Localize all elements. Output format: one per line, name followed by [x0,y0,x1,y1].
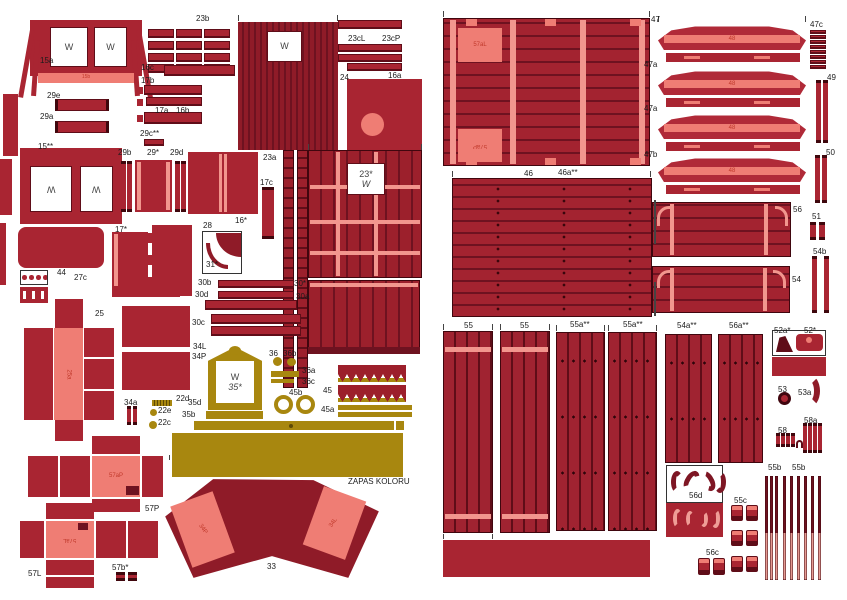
part-label-23a: 23a [263,153,276,162]
part-label-54b: 54b [813,247,826,256]
part-label-47: 47 [651,15,660,24]
part-label-29d: 29d [170,148,183,157]
part-label-56d: 56d [689,491,702,500]
tab [630,158,641,165]
part-label-30b: 30b [198,278,211,287]
part-45a [338,412,412,417]
part-55b-pin [790,476,793,580]
part-label-57p: 57P [145,504,159,513]
part-label-29-: 29* [147,148,159,157]
part-label-55a-: 55a** [623,320,643,329]
fold-tick [443,534,444,539]
part-30c [211,326,301,336]
window-text: W [92,184,101,194]
window-text: W [47,184,56,194]
part-25-tab [55,299,83,328]
part-label-47a: 47a [644,60,657,69]
part-label-49: 49 [827,73,836,82]
part-label-29c-: 29c** [140,129,159,138]
part-label-44: 44 [57,268,66,277]
batten [502,347,548,352]
part-label-56c: 56c [706,548,719,557]
tab [137,115,143,122]
part-57L-flap [20,521,44,558]
part-23b-slat [176,41,202,50]
part-34P [122,352,190,390]
part-52-bar [772,357,826,376]
window: W [50,27,88,67]
tab [137,87,143,94]
part-33-patch-text: 34L [329,517,340,529]
part-27c [18,227,104,268]
part-57aL-face-text: 57aL [63,536,76,543]
curve-piece [686,511,694,527]
part-23b-slat [148,53,174,62]
fold-tick [604,325,605,331]
part-label-45a: 45a [321,405,334,414]
batten [580,20,586,164]
dash [684,101,700,104]
part-48-band: 48 [664,80,800,88]
dash [754,101,770,104]
window-subtext: W [362,179,371,189]
fold-tick [337,15,338,21]
part-25-tab [55,420,83,441]
part-29cxx [144,139,164,146]
glue-patch: 57aL [458,28,502,62]
part-55b-pin [770,476,773,580]
tab [630,19,641,26]
part-label-55: 55 [464,321,473,330]
part-35d [206,411,263,419]
tab [146,233,152,243]
part-55c [731,505,743,521]
part-label-55a-: 55a** [570,320,590,329]
block [347,79,422,150]
part-label-51: 51 [812,212,821,221]
part-35b-end [396,421,404,430]
part-25-arm [84,328,114,357]
part-label-16c: 16c [141,63,154,72]
part-25-arm [84,391,114,420]
part-label-54a-: 54a** [677,321,697,330]
part-29b [121,161,126,212]
part-36a [271,371,299,377]
dash [754,145,770,148]
batten [336,152,340,276]
part-57aP-face-text: 57aP [109,473,123,480]
part-54b [812,256,817,313]
part-23cL [338,20,402,29]
part-label-45b: 45b [289,388,302,397]
batten [310,283,418,287]
part-36c [271,379,294,383]
fold-tick [443,324,444,330]
window: W [80,166,113,212]
part-16b [146,97,202,106]
part-label-34p: 34P [192,352,206,361]
part-30c [211,314,301,324]
part-58 [776,433,780,447]
fold-tick [492,534,493,539]
part-56c [698,558,710,575]
part-label-36b: 36b [283,349,296,358]
part-48-band: 48 [664,167,800,175]
bottom-bar [443,540,650,577]
tab [137,99,143,106]
tab [146,255,152,265]
part-47c [810,55,826,59]
part-57L-tab [46,577,94,588]
part-label-29e: 29e [47,91,60,100]
part-47c [810,50,826,54]
part-29d [181,161,186,212]
part-label-35b: 35b [182,410,195,419]
window-subtext: 35* [228,382,242,392]
fold-tick [169,455,170,460]
window: W [267,31,302,62]
window-text: W [106,42,115,52]
edge-strip [3,94,18,156]
part-23b-slat [204,53,230,62]
fold-tick [500,324,501,330]
part-57b [116,572,125,581]
part-48-band-text: 48 [729,36,736,43]
part-45 [338,385,406,402]
dash [754,188,770,191]
part-25a-center-text: 25a [65,369,72,379]
part-label-16-: 16* [235,216,247,225]
fold-tick [608,325,609,331]
part-label-46a-: 46a** [558,168,578,177]
part-29b [127,161,132,212]
part-25a-center: 25a [54,328,83,420]
fold-tick [654,282,656,316]
part-label-16a: 16a [388,71,401,80]
part-label-45: 45 [323,386,332,395]
part-16x-panel [188,152,258,214]
part-57P-tab [92,499,140,512]
batten [639,20,645,164]
part-55b-pin [765,476,768,580]
curve-piece [671,471,683,493]
fold-tick [238,15,239,21]
part-label-22c: 22c [158,418,171,427]
notch [126,486,139,495]
edge-strip [0,223,6,285]
glue-patch-text: 57aP [473,142,487,149]
part-23b-slat [148,41,174,50]
part-label-55: 55 [520,321,529,330]
part-55b-pin [775,476,778,580]
part-47c [810,40,826,44]
part-55a-panel [556,332,605,531]
curve-piece [714,471,726,493]
part-57L-arm [96,521,126,558]
part-label-23cp: 23cP [382,34,400,43]
window: W35* [216,361,254,403]
dash [684,145,700,148]
part-label-35d: 35d [188,398,201,407]
part-label-55b: 55b [768,463,781,472]
part-label-53a: 53a [798,388,811,397]
batten [310,251,420,255]
spare-color-block [172,433,403,477]
part-label-zapas-koloru: ZAPAS KOLORU [348,477,410,486]
part-55c [731,530,743,546]
part-45b [274,395,293,414]
part-label-23cl: 23cL [348,34,365,43]
part-label-55c: 55c [734,496,747,505]
part-55a-panel [608,332,657,531]
batten [764,204,768,255]
batten [137,162,141,210]
part-30a [205,300,297,310]
part-51 [819,222,825,240]
part-57P-arm [60,456,90,497]
notch [78,523,88,530]
part-54b [824,256,829,313]
clip [796,440,803,448]
curve-piece [711,509,720,528]
part-46a-panel [452,178,652,317]
part-47c [810,45,826,49]
part-label-33: 33 [267,562,276,571]
part-58a [808,423,812,453]
part-47c [810,30,826,34]
batten [166,162,170,210]
part-label-16b: 16b [176,106,189,115]
part-label-23b: 23b [196,14,209,23]
part-56c [713,558,725,575]
batten [224,154,227,212]
part-label-56: 56 [793,205,802,214]
batten [502,514,548,519]
part-55c [746,505,758,521]
part-58 [791,433,795,447]
part-label-15a: 15a [40,56,53,65]
part-48-band-text: 48 [729,168,736,175]
part-15b-band: 15b [38,73,134,83]
fold-tick [654,200,656,244]
part-25-arm [84,359,114,389]
part-57P-arm [28,456,58,497]
fold-tick [492,324,493,330]
part-17b [144,85,202,95]
knob [229,346,241,355]
part-55b-pin [818,476,821,580]
window-text: W [280,41,289,51]
part-17a [144,112,202,124]
part-label-31-: 31* [206,260,218,269]
part-45 [338,365,406,382]
part-label-17c: 17c [260,178,273,187]
part-55b-pin [811,476,814,580]
part-label-30c: 30c [192,318,205,327]
fold-tick [656,325,657,331]
part-47c [810,65,826,69]
fold-tick [443,11,444,17]
glue-patch-text: 57aL [473,42,486,49]
part-55c [746,556,758,572]
fold-tick [650,171,651,177]
model-sheet: WW15bWWW23*W25aW35*57aP57aL34P34L57aL57a… [0,0,847,600]
part-25-arm [24,328,53,420]
part-label-50: 50 [826,148,835,157]
part-34a [127,406,131,425]
part-label-22e: 22e [158,406,171,415]
fold-tick [308,144,309,150]
part-label-34a: 34a [124,398,137,407]
part-23c-slat [338,44,402,52]
dash [684,56,700,59]
batten [445,347,491,352]
part-49 [816,80,821,143]
part-label-15-: 15** [38,142,53,151]
part-49 [823,80,828,143]
part-22e [150,409,157,416]
part-44-bottom [20,287,48,303]
part-label-57l: 57L [28,569,41,578]
part-23b-slat [148,29,174,38]
part-29e [55,99,109,111]
part-16a [347,63,402,71]
batten [670,268,674,311]
disc [361,113,384,136]
part-57L-tab [46,560,94,575]
part-57P-tab [92,436,140,454]
part-58a [813,423,817,453]
edge-strip [0,159,12,215]
part-58a [818,423,822,453]
batten [763,268,767,311]
part-label-29a: 29a [40,112,53,121]
part-label-56a-: 56a** [729,321,749,330]
part-58 [781,433,785,447]
part-57L-tab [46,503,94,519]
part-36b [287,358,296,366]
part-23b-slat [204,29,230,38]
curve-piece [700,511,708,527]
tab [545,19,556,26]
part-label-28: 28 [203,221,212,230]
part-55b-pin [783,476,786,580]
part-45b [296,395,315,414]
glue-patch: 57aP [458,129,502,162]
batten [445,514,491,519]
part-47c [810,35,826,39]
part-label-17-: 17* [115,225,127,234]
part-label-52-: 52* [804,326,816,335]
part-label-29b: 29b [118,148,131,157]
batten [219,154,222,212]
part-label-53: 53 [778,385,787,394]
part-label-30d: 30d [195,290,208,299]
part-label-30a: 30a [296,292,309,301]
part-16c [164,65,235,76]
part-51 [810,222,816,240]
part-30d [218,291,294,299]
part-23b-slat [204,41,230,50]
part-label-25: 25 [95,309,104,318]
part-44-top [20,270,48,285]
fold-tick [549,324,550,330]
part-label-30-: 30* [294,279,306,288]
part-47c [810,60,826,64]
part-55b-pin [797,476,800,580]
part-33-patch-text: 34P [197,523,209,536]
tab [146,277,152,287]
window: 23*W [347,163,385,195]
dot [806,337,812,343]
part-48-band-text: 48 [729,125,736,132]
dash [754,56,770,59]
dash [684,188,700,191]
panel-cap [308,347,420,354]
part-23b-slat [176,29,202,38]
part-label-47b: 47b [644,150,657,159]
fold-tick [805,16,806,22]
tab [545,158,556,165]
part-label-27c: 27c [74,273,87,282]
part-34L [122,306,190,347]
part-55b-pin [804,476,807,580]
part-35b [194,421,394,430]
window: W [94,27,127,67]
part-label-52a-: 52a* [774,326,790,335]
window-text: W [231,372,240,382]
part-55-panel [443,331,493,533]
part-29d [175,161,180,212]
part-50 [822,155,827,203]
part-label-58a: 58a [804,416,817,425]
curve-piece [673,509,682,528]
part-17c [262,187,274,239]
window: W [30,166,72,212]
part-label-17a: 17a [155,106,168,115]
fold-tick [452,171,453,177]
part-36 [273,357,282,366]
part-label-36a: 36a [302,366,315,375]
part-50 [815,155,820,203]
part-57b [128,572,137,581]
part-48-band: 48 [664,124,800,132]
part-label-17b: 17b [141,76,154,85]
part-label-54: 54 [792,275,801,284]
part-label-57b-: 57b* [112,563,128,572]
part-34a [133,406,137,425]
part-56a-panel [718,334,763,463]
part-55-panel [500,331,550,533]
part-30x-panel [308,280,420,354]
batten [450,20,456,164]
tab [466,19,477,26]
part-label-24: 24 [340,73,349,82]
part-30b [218,280,294,288]
window-text: W [65,42,74,52]
fold-tick [421,144,422,150]
part-label-47c: 47c [810,20,823,29]
part-label-36c: 36c [302,377,315,386]
part-48-band-text: 48 [729,81,736,88]
part-label-47a: 47a [644,104,657,113]
part-58 [786,433,790,447]
part-57L-arm [128,521,158,558]
part-label-55b: 55b [792,463,805,472]
part-23b-slat [176,53,202,62]
part-23a-strip [297,150,308,388]
part-22c [149,421,157,429]
